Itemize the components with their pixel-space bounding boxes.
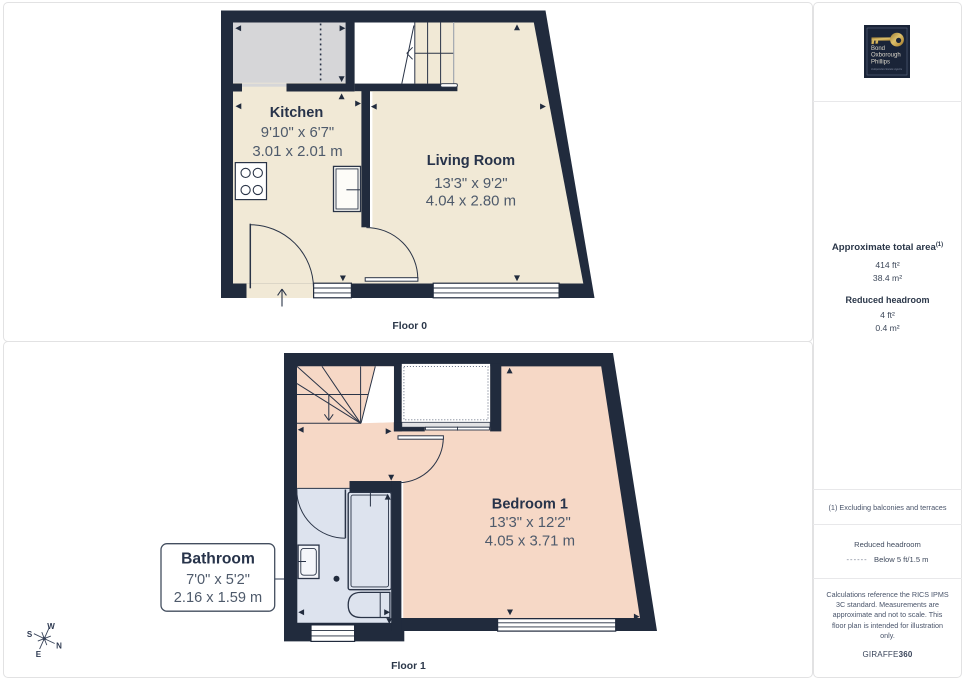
svg-text:S: S xyxy=(27,630,33,639)
svg-text:W: W xyxy=(47,622,55,631)
svg-text:13'3" x 9'2": 13'3" x 9'2" xyxy=(434,176,507,192)
svg-text:7'0" x 5'2": 7'0" x 5'2" xyxy=(186,572,250,588)
svg-text:Floor 1: Floor 1 xyxy=(391,661,426,672)
svg-text:9'10" x 6'7": 9'10" x 6'7" xyxy=(261,125,334,141)
svg-text:Bedroom 1: Bedroom 1 xyxy=(492,497,568,513)
svg-text:13'3" x 12'2": 13'3" x 12'2" xyxy=(489,515,571,531)
svg-text:4.04 x 2.80 m: 4.04 x 2.80 m xyxy=(426,194,516,210)
svg-text:Living Room: Living Room xyxy=(427,153,515,169)
svg-text:2.16 x 1.59 m: 2.16 x 1.59 m xyxy=(174,590,262,606)
svg-text:4.05 x 3.71 m: 4.05 x 3.71 m xyxy=(485,534,575,550)
svg-text:N: N xyxy=(56,641,62,650)
svg-text:3.01 x 2.01 m: 3.01 x 2.01 m xyxy=(252,144,342,160)
svg-text:Bathroom: Bathroom xyxy=(181,551,255,568)
svg-text:Kitchen: Kitchen xyxy=(270,105,324,121)
svg-text:Floor 0: Floor 0 xyxy=(392,321,427,332)
svg-text:E: E xyxy=(36,650,42,659)
